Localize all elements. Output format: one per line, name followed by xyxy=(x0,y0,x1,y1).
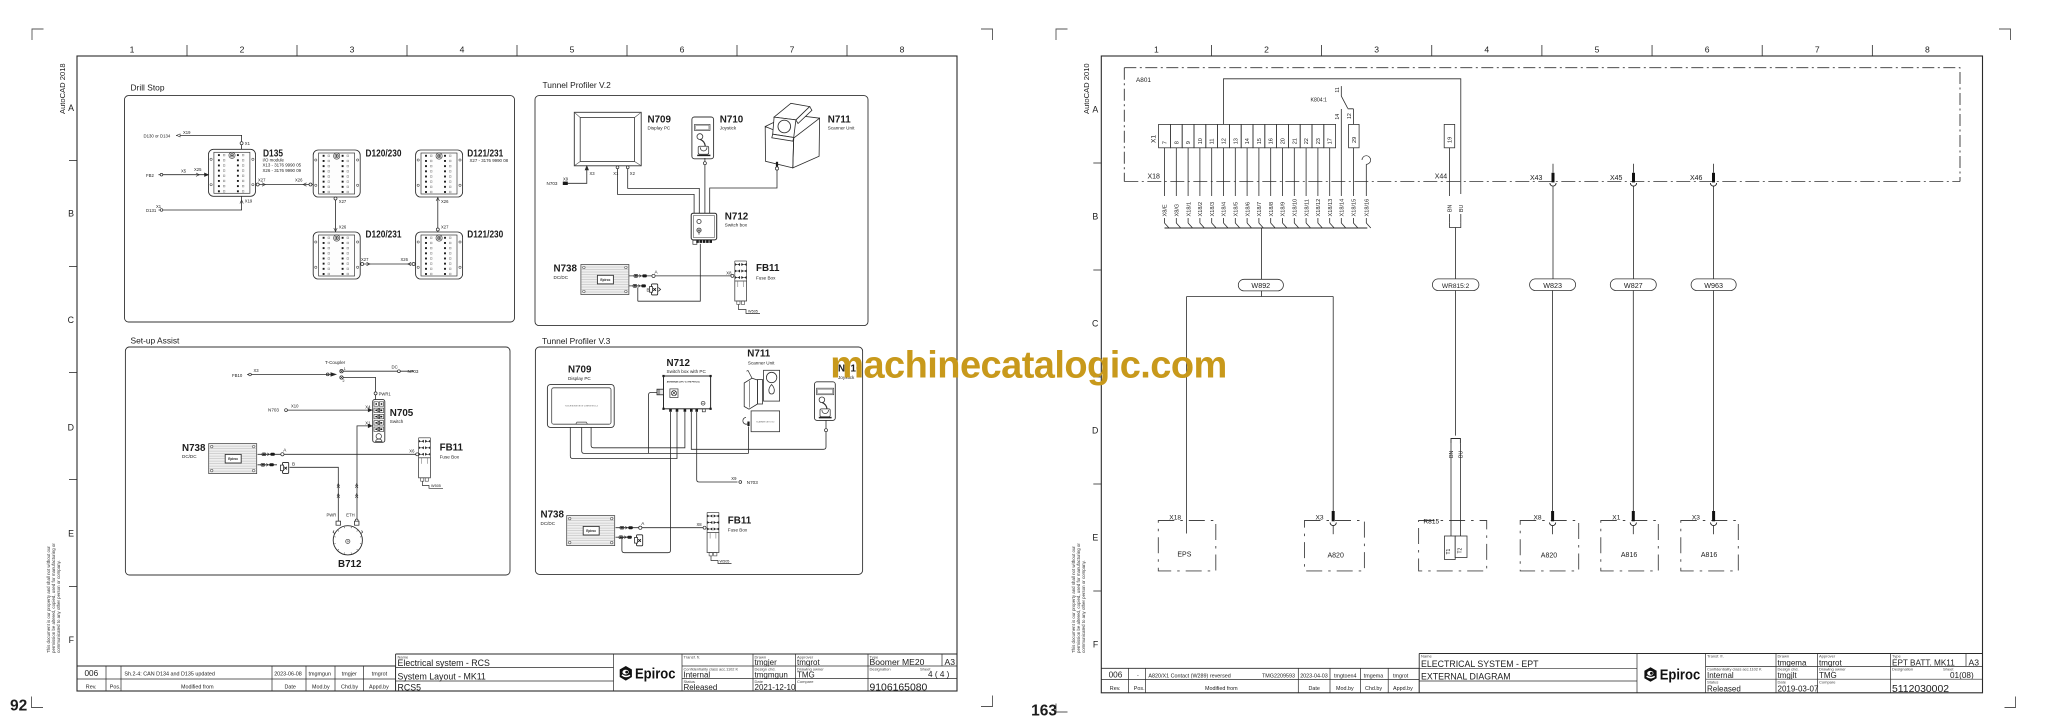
svg-text:01(08): 01(08) xyxy=(1950,671,1974,680)
svg-text:WR815:2: WR815:2 xyxy=(1442,283,1470,290)
svg-text:B: B xyxy=(68,209,74,219)
svg-text:X5: X5 xyxy=(181,169,187,174)
svg-text:SCANNER UNIT V.3.0: SCANNER UNIT V.3.0 xyxy=(756,420,774,423)
svg-text:X18/6: X18/6 xyxy=(1245,202,1251,217)
svg-text:X27: X27 xyxy=(441,225,449,230)
svg-text:communicated to any other pers: communicated to any other person or comp… xyxy=(56,560,61,653)
svg-text:Switch: Switch xyxy=(390,419,404,424)
svg-text:Compare: Compare xyxy=(1819,680,1836,685)
svg-text:4: 4 xyxy=(1484,45,1489,55)
svg-text:15: 15 xyxy=(1257,138,1263,144)
svg-text:X1: X1 xyxy=(1612,515,1620,522)
svg-text:2023-06-08: 2023-06-08 xyxy=(274,671,302,677)
svg-text:AutoCAD 2010: AutoCAD 2010 xyxy=(1082,63,1091,114)
svg-text:7: 7 xyxy=(790,45,795,55)
svg-text:11: 11 xyxy=(1335,87,1341,92)
svg-text:12: 12 xyxy=(1222,138,1228,144)
svg-text:X18/3: X18/3 xyxy=(1210,202,1216,217)
svg-text:DC/DC: DC/DC xyxy=(541,521,556,526)
svg-text:X26: X26 xyxy=(339,225,347,230)
svg-text:Chd.by: Chd.by xyxy=(1365,686,1382,692)
svg-text:X26: X26 xyxy=(401,257,409,262)
svg-text:D120/231: D120/231 xyxy=(366,230,402,241)
svg-text:9: 9 xyxy=(1186,141,1192,144)
svg-text:N712: N712 xyxy=(725,211,749,222)
svg-text:X19: X19 xyxy=(183,130,191,135)
svg-text:Scanner Unit: Scanner Unit xyxy=(828,125,855,130)
svg-text:X18/1: X18/1 xyxy=(1186,202,1192,217)
svg-text:Rev.: Rev. xyxy=(86,685,97,691)
svg-text:A801: A801 xyxy=(1136,77,1151,84)
svg-text:X46: X46 xyxy=(1690,175,1703,182)
svg-text:N738: N738 xyxy=(182,443,206,454)
svg-text:F: F xyxy=(1093,640,1099,650)
svg-text:TMG2209593: TMG2209593 xyxy=(1262,673,1295,679)
svg-text:DC/DC: DC/DC xyxy=(554,275,569,280)
svg-text:2: 2 xyxy=(343,379,345,383)
svg-text:X25: X25 xyxy=(194,167,202,172)
svg-text:N703: N703 xyxy=(268,407,279,412)
svg-text:E: E xyxy=(1092,533,1098,543)
svg-text:C: C xyxy=(1092,319,1099,329)
svg-text:Tunnel Profiler V.3: Tunnel Profiler V.3 xyxy=(542,336,611,346)
svg-text:DC/DC: DC/DC xyxy=(182,454,197,459)
svg-text:D131: D131 xyxy=(146,208,157,213)
svg-text:PWR1: PWR1 xyxy=(379,391,392,396)
svg-text:X26 - 3176 9990 09: X26 - 3176 9990 09 xyxy=(263,168,302,173)
svg-text:N711: N711 xyxy=(747,349,770,360)
svg-text:FB11: FB11 xyxy=(756,263,780,274)
svg-text:tmgrot: tmgrot xyxy=(1393,673,1409,679)
svg-text:2023-04-03: 2023-04-03 xyxy=(1300,673,1328,679)
svg-text:Mod.by: Mod.by xyxy=(312,685,330,691)
svg-text:N703: N703 xyxy=(747,480,758,485)
svg-text:Pos.: Pos. xyxy=(1134,686,1145,692)
svg-text:X8: X8 xyxy=(1534,515,1542,522)
svg-text:9106165080: 9106165080 xyxy=(870,682,928,693)
svg-text:X8/E: X8/E xyxy=(1163,204,1169,216)
svg-text:X18/5: X18/5 xyxy=(1234,202,1240,217)
svg-text:5: 5 xyxy=(1595,45,1600,55)
svg-text:System Layout - MK11: System Layout - MK11 xyxy=(398,671,486,681)
svg-text:Switch box: Switch box xyxy=(725,223,748,228)
svg-text:X18/7: X18/7 xyxy=(1257,202,1263,217)
svg-text:2: 2 xyxy=(240,45,245,55)
svg-text:D: D xyxy=(68,423,74,433)
svg-text:A820: A820 xyxy=(1541,553,1557,560)
svg-text:Electrical system - RCS: Electrical system - RCS xyxy=(398,658,491,668)
svg-text:FB2: FB2 xyxy=(146,173,154,178)
svg-text:4 ( 4 ): 4 ( 4 ) xyxy=(928,670,950,679)
svg-text:Modified from: Modified from xyxy=(1205,686,1238,692)
svg-text:163: 163 xyxy=(1031,703,1057,720)
svg-text:8: 8 xyxy=(1925,45,1930,55)
svg-text:X10: X10 xyxy=(291,404,299,409)
svg-text:19: 19 xyxy=(1447,137,1453,143)
svg-text:A: A xyxy=(68,103,74,113)
svg-text:X13 - 3176 9990 05: X13 - 3176 9990 05 xyxy=(263,163,302,168)
svg-text:6: 6 xyxy=(1705,45,1710,55)
svg-text:tmgrot: tmgrot xyxy=(372,671,388,677)
svg-text:Appd.by: Appd.by xyxy=(1393,686,1413,692)
svg-text:N703: N703 xyxy=(547,181,558,186)
svg-text:B: B xyxy=(647,288,650,293)
svg-text:A3: A3 xyxy=(1969,657,1980,667)
svg-text:2: 2 xyxy=(1264,45,1269,55)
svg-text:Date: Date xyxy=(285,685,296,691)
svg-text:DC: DC xyxy=(392,365,398,370)
svg-text:A816: A816 xyxy=(1701,552,1717,559)
svg-text:D: D xyxy=(1092,426,1098,436)
svg-text:N711: N711 xyxy=(828,115,851,126)
svg-text:BU: BU xyxy=(1459,451,1465,458)
svg-text:A820/X1 Contact (W289) reverse: A820/X1 Contact (W289) reversed xyxy=(1148,673,1230,679)
svg-text:T1: T1 xyxy=(1446,548,1452,554)
svg-text:Epiroc: Epiroc xyxy=(635,667,676,683)
svg-text:Fuse Box: Fuse Box xyxy=(728,527,748,532)
svg-text:TOUCH MONITOR KIT COMPLETE 15.: TOUCH MONITOR KIT COMPLETE 15.4 xyxy=(565,405,598,407)
svg-text:1: 1 xyxy=(1154,45,1159,55)
svg-text:tmgjer: tmgjer xyxy=(342,671,357,677)
svg-text:14: 14 xyxy=(1335,114,1341,120)
svg-text:W963: W963 xyxy=(1704,281,1723,290)
svg-text:B: B xyxy=(292,461,295,466)
svg-text:X3: X3 xyxy=(254,368,260,373)
svg-text:Fuse Box: Fuse Box xyxy=(440,454,460,459)
svg-text:4: 4 xyxy=(460,45,465,55)
svg-text:X3: X3 xyxy=(1692,515,1700,522)
svg-text:14: 14 xyxy=(1245,138,1251,144)
svg-text:7: 7 xyxy=(1815,45,1820,55)
svg-text:1: 1 xyxy=(344,367,346,371)
svg-text:21: 21 xyxy=(1292,138,1298,144)
svg-text:X26: X26 xyxy=(441,199,449,204)
svg-text:W505: W505 xyxy=(431,484,441,488)
svg-text:AutoCAD 2018: AutoCAD 2018 xyxy=(58,63,67,114)
svg-text:ELECTRICAL SYSTEM - EPT: ELECTRICAL SYSTEM - EPT xyxy=(1421,659,1539,669)
svg-text:FB10: FB10 xyxy=(232,373,243,378)
svg-text:C: C xyxy=(68,315,75,325)
svg-text:X27: X27 xyxy=(361,257,369,262)
svg-text:7: 7 xyxy=(1163,141,1169,144)
svg-text:92: 92 xyxy=(10,698,27,715)
svg-text:Mod.by: Mod.by xyxy=(1336,686,1354,692)
svg-text:6: 6 xyxy=(680,45,685,55)
svg-text:Sh.2-4: CAN D134 and D135 upda: Sh.2-4: CAN D134 and D135 updated xyxy=(124,671,215,677)
svg-text:BN: BN xyxy=(1448,205,1454,212)
svg-text:EXTERNAL DIAGRAM: EXTERNAL DIAGRAM xyxy=(1421,671,1511,681)
svg-text:X27: X27 xyxy=(339,199,347,204)
svg-text:Drill Stop: Drill Stop xyxy=(131,83,165,93)
svg-text:BN: BN xyxy=(1449,451,1455,458)
svg-text:RCS5: RCS5 xyxy=(398,683,422,693)
svg-text:X44: X44 xyxy=(1435,174,1448,181)
svg-text:X18/11: X18/11 xyxy=(1304,199,1310,216)
svg-text:23: 23 xyxy=(1316,138,1322,144)
svg-text:Released: Released xyxy=(1707,684,1741,693)
svg-text:X27: X27 xyxy=(258,177,266,182)
svg-text:Switch box with PC: Switch box with PC xyxy=(667,369,707,374)
svg-text:X1: X1 xyxy=(156,204,162,209)
svg-text:Date: Date xyxy=(1309,686,1320,692)
svg-text:W823: W823 xyxy=(1543,281,1562,290)
svg-text:W505: W505 xyxy=(748,309,758,313)
svg-text:3: 3 xyxy=(350,45,355,55)
svg-text:X18/9: X18/9 xyxy=(1281,202,1287,217)
svg-text:8: 8 xyxy=(900,45,905,55)
svg-text:16: 16 xyxy=(1269,138,1275,144)
svg-text:D121/230: D121/230 xyxy=(467,230,503,241)
svg-text:X6: X6 xyxy=(409,449,415,454)
svg-text:Scanner Unit: Scanner Unit xyxy=(748,361,775,366)
svg-text:T2: T2 xyxy=(1457,547,1463,553)
svg-text:5: 5 xyxy=(570,45,575,55)
svg-text:Chd.by: Chd.by xyxy=(341,685,358,691)
svg-text:X18: X18 xyxy=(1169,515,1181,522)
svg-text:3: 3 xyxy=(1374,45,1379,55)
svg-text:Released: Released xyxy=(684,683,718,692)
svg-text:Display PC: Display PC xyxy=(568,376,591,381)
svg-text:D120/230: D120/230 xyxy=(366,149,402,160)
svg-text:X18/15: X18/15 xyxy=(1352,199,1358,217)
svg-text:X18: X18 xyxy=(1148,174,1161,181)
svg-text:X26: X26 xyxy=(295,177,303,182)
svg-text:Compare: Compare xyxy=(797,679,814,684)
svg-text:machinecatalogic.com: machinecatalogic.com xyxy=(830,345,1227,387)
svg-text:8: 8 xyxy=(1174,141,1180,144)
svg-text:13: 13 xyxy=(1233,138,1239,144)
svg-text:tmgmgun: tmgmgun xyxy=(309,671,331,677)
svg-text:X1: X1 xyxy=(1151,135,1158,143)
svg-text:1: 1 xyxy=(130,45,135,55)
svg-text:Joystick: Joystick xyxy=(720,125,737,130)
svg-text:X18/14: X18/14 xyxy=(1340,199,1346,217)
svg-text:X19: X19 xyxy=(245,198,253,203)
svg-text:Display PC: Display PC xyxy=(648,125,671,130)
svg-text:Designation: Designation xyxy=(1892,667,1913,672)
svg-text:006: 006 xyxy=(85,669,99,678)
svg-text:W827: W827 xyxy=(1624,281,1643,290)
svg-text:B712: B712 xyxy=(338,559,362,570)
svg-text:A: A xyxy=(1092,105,1098,115)
svg-text:F: F xyxy=(69,635,75,645)
svg-text:X9: X9 xyxy=(563,177,569,182)
svg-text:D130 or D134: D130 or D134 xyxy=(144,133,171,138)
svg-text:20: 20 xyxy=(1281,138,1287,144)
svg-text:X27 - 3176 9990 08: X27 - 3176 9990 08 xyxy=(470,158,509,163)
svg-text:Transf. fr.: Transf. fr. xyxy=(1707,654,1724,659)
svg-text:N710: N710 xyxy=(720,115,744,126)
svg-text:Rev.: Rev. xyxy=(1110,686,1121,692)
svg-text:N705: N705 xyxy=(390,408,414,419)
svg-text:Transf. fr.: Transf. fr. xyxy=(684,654,701,659)
svg-text:X43: X43 xyxy=(1530,175,1543,182)
svg-text:X8: X8 xyxy=(697,522,703,527)
svg-text:X18/16: X18/16 xyxy=(1365,199,1371,217)
svg-text:X2: X2 xyxy=(630,171,636,176)
svg-text:Epiroc: Epiroc xyxy=(1660,668,1701,684)
svg-text:5112030002: 5112030002 xyxy=(1892,684,1949,695)
svg-text:X1: X1 xyxy=(613,171,619,176)
svg-text:FB11: FB11 xyxy=(728,516,752,527)
svg-text:T-Coupler: T-Coupler xyxy=(325,360,346,365)
svg-text:K804:1: K804:1 xyxy=(1311,98,1328,104)
svg-text:R815: R815 xyxy=(1423,519,1439,526)
svg-text:X18/4: X18/4 xyxy=(1222,202,1228,217)
svg-text:-: - xyxy=(1137,673,1139,679)
svg-text:tmgtoen4: tmgtoen4 xyxy=(1334,673,1356,679)
svg-text:29: 29 xyxy=(1352,137,1358,143)
svg-text:X8/G: X8/G xyxy=(1175,204,1181,217)
svg-text:X18/12: X18/12 xyxy=(1316,199,1322,217)
svg-text:ANTENNAS w/PC V.3 TM PNT (G): ANTENNAS w/PC V.3 TM PNT (G) xyxy=(667,381,700,384)
svg-text:BU: BU xyxy=(1459,205,1465,212)
svg-text:ETH: ETH xyxy=(346,513,354,518)
svg-text:W892: W892 xyxy=(1251,281,1270,290)
svg-text:N738: N738 xyxy=(541,510,565,521)
svg-text:X1: X1 xyxy=(245,141,251,146)
svg-text:Pos.: Pos. xyxy=(110,685,121,691)
svg-text:22: 22 xyxy=(1304,138,1310,144)
svg-text:EPS: EPS xyxy=(1177,552,1191,559)
svg-text:2019-03-07: 2019-03-07 xyxy=(1778,684,1819,693)
svg-text:X45: X45 xyxy=(1610,175,1623,182)
svg-text:W505: W505 xyxy=(720,559,730,563)
svg-text:X18/2: X18/2 xyxy=(1198,202,1204,217)
svg-text:A816: A816 xyxy=(1621,552,1637,559)
svg-text:I/O module: I/O module xyxy=(263,157,285,162)
svg-text:N703: N703 xyxy=(408,369,419,374)
svg-text:11: 11 xyxy=(1210,138,1216,144)
svg-text:N712: N712 xyxy=(667,358,691,369)
svg-text:X18/10: X18/10 xyxy=(1293,199,1299,217)
svg-text:B: B xyxy=(1092,212,1098,222)
svg-text:Appd.by: Appd.by xyxy=(369,685,389,691)
svg-text:006: 006 xyxy=(1109,671,1123,680)
svg-text:tmgema: tmgema xyxy=(1364,673,1383,679)
svg-text:N709: N709 xyxy=(648,115,672,126)
svg-text:X18/8: X18/8 xyxy=(1269,202,1275,217)
svg-text:Tunnel Profiler V.2: Tunnel Profiler V.2 xyxy=(543,80,612,90)
svg-text:X9: X9 xyxy=(731,476,737,481)
svg-text:X18/13: X18/13 xyxy=(1328,199,1334,217)
svg-text:N738: N738 xyxy=(554,264,578,275)
svg-text:Designation: Designation xyxy=(870,666,891,671)
svg-text:2021-12-10: 2021-12-10 xyxy=(755,683,796,692)
svg-text:Modified from: Modified from xyxy=(181,685,214,691)
svg-text:Fuse Box: Fuse Box xyxy=(756,275,776,280)
svg-text:A820: A820 xyxy=(1328,553,1344,560)
svg-text:A3: A3 xyxy=(945,657,956,667)
svg-text:10: 10 xyxy=(1198,138,1204,144)
svg-text:Set-up Assist: Set-up Assist xyxy=(131,336,181,346)
svg-text:12: 12 xyxy=(1347,113,1353,119)
svg-text:X3: X3 xyxy=(590,171,596,176)
svg-text:17: 17 xyxy=(1328,138,1334,144)
svg-text:communicated to any other pers: communicated to any other person or comp… xyxy=(1081,560,1086,653)
svg-text:X3: X3 xyxy=(1316,515,1324,522)
svg-text:N709: N709 xyxy=(568,365,592,376)
svg-text:FB11: FB11 xyxy=(440,443,464,454)
svg-text:PWR: PWR xyxy=(327,513,337,518)
svg-text:E: E xyxy=(68,529,74,539)
